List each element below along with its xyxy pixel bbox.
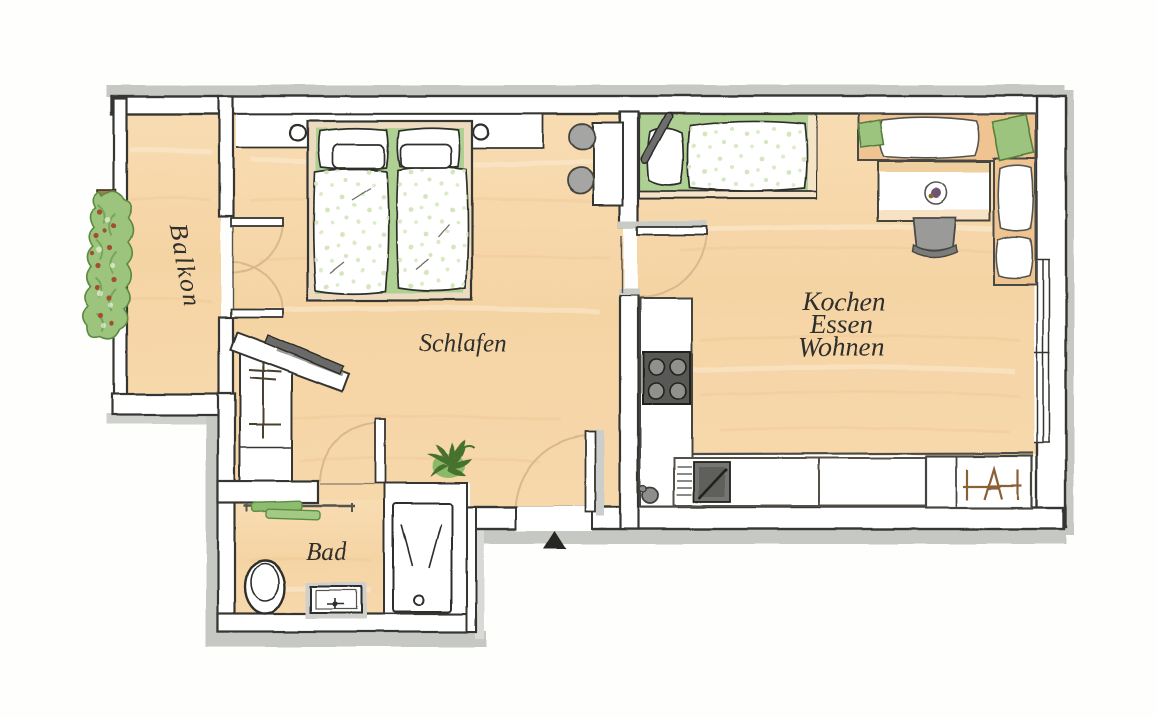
- svg-text:Schlafen: Schlafen: [420, 330, 506, 357]
- svg-text:Wohnen: Wohnen: [798, 332, 884, 362]
- svg-text:Bad: Bad: [306, 538, 347, 565]
